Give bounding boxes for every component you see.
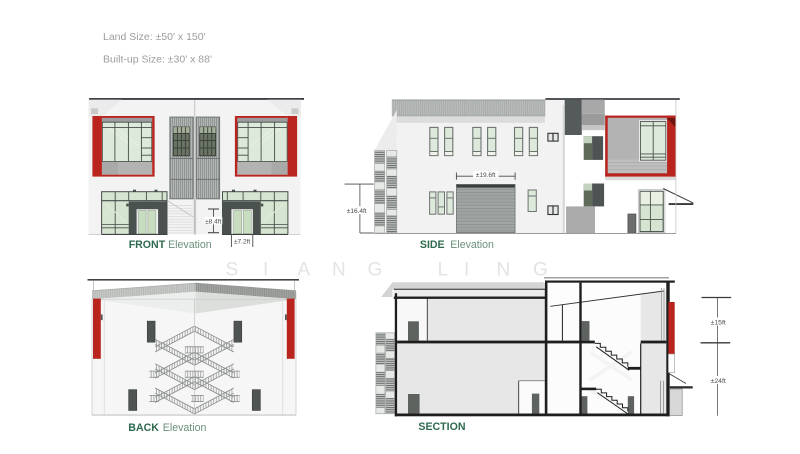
svg-text:G: G (533, 260, 548, 281)
svg-text:Elevation: Elevation (168, 239, 212, 251)
svg-text:A: A (298, 260, 311, 281)
svg-text:±15ft: ±15ft (711, 319, 726, 326)
svg-text:L: L (438, 260, 449, 281)
svg-text:I: I (263, 260, 268, 281)
svg-text:FRONT: FRONT (129, 239, 166, 251)
svg-text:G: G (368, 260, 383, 281)
svg-text:±16.4ft: ±16.4ft (347, 208, 367, 215)
svg-text:N: N (332, 260, 346, 281)
svg-text:Land Size: ±50' x 150': Land Size: ±50' x 150' (103, 31, 206, 43)
svg-text:Elevation: Elevation (163, 422, 207, 434)
svg-text:Built-up Size: ±30' x 88': Built-up Size: ±30' x 88' (103, 54, 212, 66)
svg-text:N: N (497, 260, 511, 281)
svg-text:SIDE: SIDE (420, 239, 445, 251)
svg-text:±8.4ft: ±8.4ft (205, 218, 221, 225)
svg-text:±19.6ft: ±19.6ft (476, 172, 496, 179)
svg-text:S: S (226, 260, 239, 281)
svg-text:Elevation: Elevation (450, 239, 494, 251)
svg-text:I: I (464, 260, 469, 281)
svg-text:±24ft: ±24ft (711, 378, 726, 385)
svg-text:BACK: BACK (128, 422, 159, 434)
svg-text:SECTION: SECTION (418, 421, 465, 433)
svg-text:±7.2ft: ±7.2ft (234, 239, 250, 246)
